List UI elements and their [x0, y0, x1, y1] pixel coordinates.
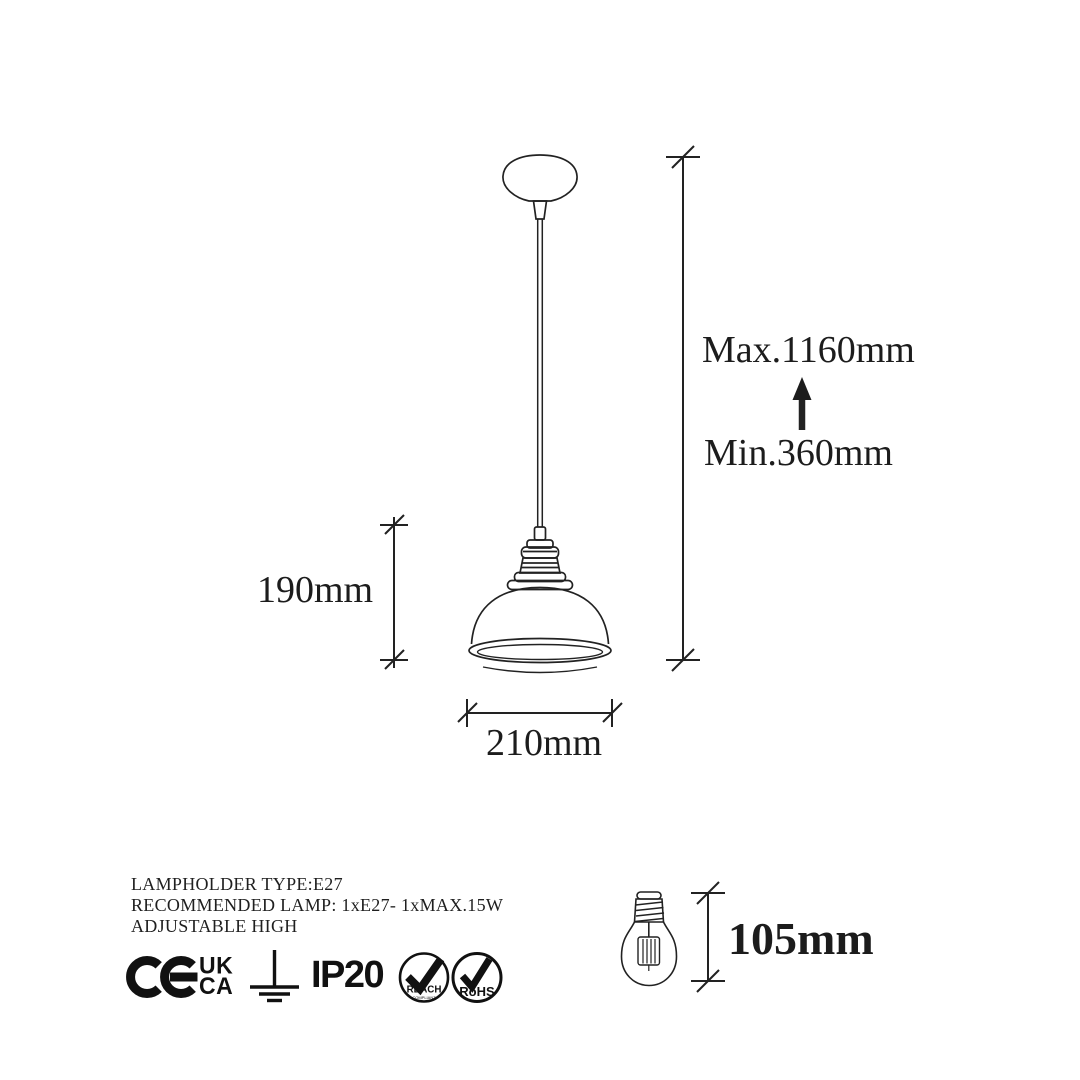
max-height-label: Max.1160mm: [702, 331, 915, 369]
spec-line-recommended-lamp: RECOMMENDED LAMP: 1xE27- 1xMAX.15W: [131, 895, 503, 916]
max-min-dimension-line: [666, 146, 700, 671]
lamp-spec-sheet: REACH COMPLIANT RoHS Max.1160mm Min.360m…: [0, 0, 1080, 1080]
reach-sub-label: COMPLIANT: [412, 995, 436, 1000]
shade-height-label: 190mm: [257, 571, 373, 609]
spec-text-block: LAMPHOLDER TYPE:E27 RECOMMENDED LAMP: 1x…: [131, 874, 503, 937]
rohs-checkmark-icon: [463, 959, 490, 987]
min-height-label: Min.360mm: [704, 434, 893, 472]
bulb-drawing: [622, 892, 677, 986]
height-adjust-arrow-icon: [793, 377, 812, 430]
spec-line-adjustable: ADJUSTABLE HIGH: [131, 916, 503, 937]
pendant-lamp-drawing: [469, 155, 611, 673]
ukca-bottom-label: CA: [199, 976, 233, 996]
lamp-holder: [508, 527, 573, 590]
ukca-icon: UK CA: [199, 956, 233, 996]
ce-mark-icon: [131, 961, 198, 994]
shade-diameter-label: 210mm: [486, 724, 602, 762]
suspension-cord: [538, 219, 543, 527]
bulb-height-label: 105mm: [728, 916, 874, 962]
shade-height-dimension-line: [380, 515, 408, 669]
reach-badge-icon: REACH COMPLIANT: [400, 954, 448, 1002]
canopy-cord-grip: [534, 201, 547, 219]
rohs-label: RoHS: [459, 984, 495, 999]
dome-shade: [469, 588, 611, 673]
ground-symbol-icon: [250, 950, 299, 1001]
ip-rating-label: IP20: [311, 954, 383, 997]
spec-line-lampholder: LAMPHOLDER TYPE:E27: [131, 874, 503, 895]
rohs-badge-icon: RoHS: [453, 954, 501, 1002]
canopy-outline: [503, 155, 577, 201]
bulb-height-dimension-line: [691, 882, 725, 992]
reach-label: REACH: [407, 985, 442, 996]
